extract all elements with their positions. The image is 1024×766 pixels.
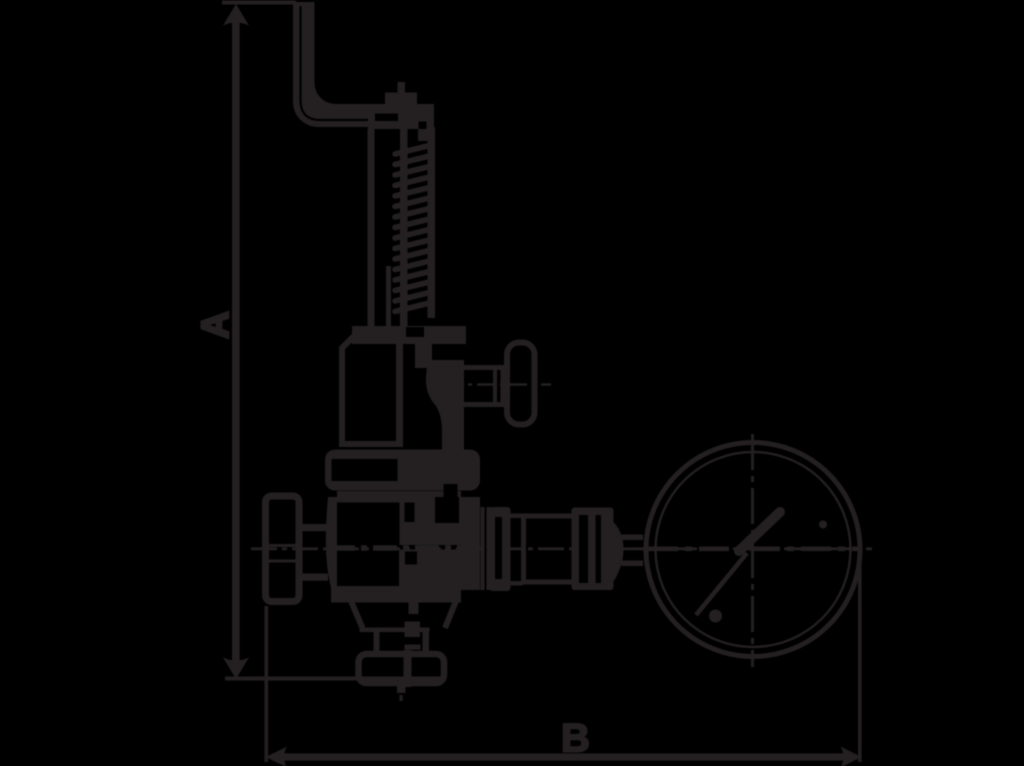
svg-text:B: B (561, 717, 590, 761)
svg-text:A: A (195, 311, 237, 338)
